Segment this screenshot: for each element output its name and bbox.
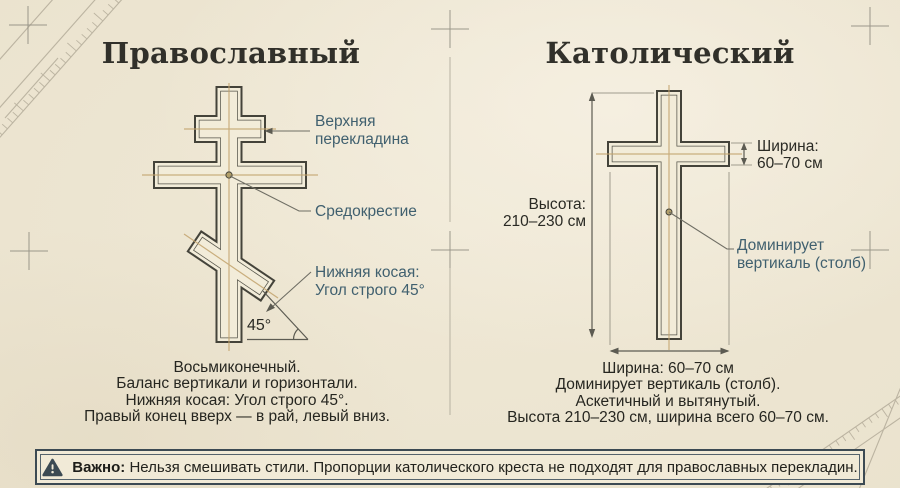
warning-icon — [42, 458, 63, 477]
set-square-top-left-icon — [0, 0, 132, 196]
banner-label: Важно: — [72, 459, 125, 476]
label-crossbar-width: Ширина: 60–70 см — [757, 138, 823, 172]
label-angle-45: 45° — [247, 317, 271, 335]
label-top-crossbar: Верхняя перекладина — [315, 113, 409, 149]
important-note-banner: Важно: Нельзя смешивать стили. Пропорции… — [35, 449, 865, 485]
label-lower-slant: Нижняя косая: Угол строго 45° — [315, 264, 425, 300]
orthodox-title: Православный — [56, 36, 406, 70]
infographic-canvas: Православный Католический Верхняя перекл… — [0, 0, 900, 488]
catholic-cross-drawing — [589, 85, 752, 354]
label-vertical-dominates: Доминирует вертикаль (столб) — [737, 237, 866, 272]
label-crosspiece: Средокрестие — [315, 203, 417, 221]
banner-text: Важно: Нельзя смешивать стили. Пропорции… — [72, 459, 857, 476]
orthodox-cross-drawing — [142, 83, 318, 351]
label-height: Высота: 210–230 см — [480, 196, 586, 230]
orthodox-summary: Восьмиконечный. Баланс вертикали и гориз… — [40, 360, 434, 426]
height-dimension — [589, 92, 654, 338]
catholic-construction-lines — [596, 85, 742, 350]
catholic-title: Католический — [495, 36, 845, 70]
catholic-summary: Ширина: 60–70 см Доминирует вертикаль (с… — [468, 361, 868, 427]
